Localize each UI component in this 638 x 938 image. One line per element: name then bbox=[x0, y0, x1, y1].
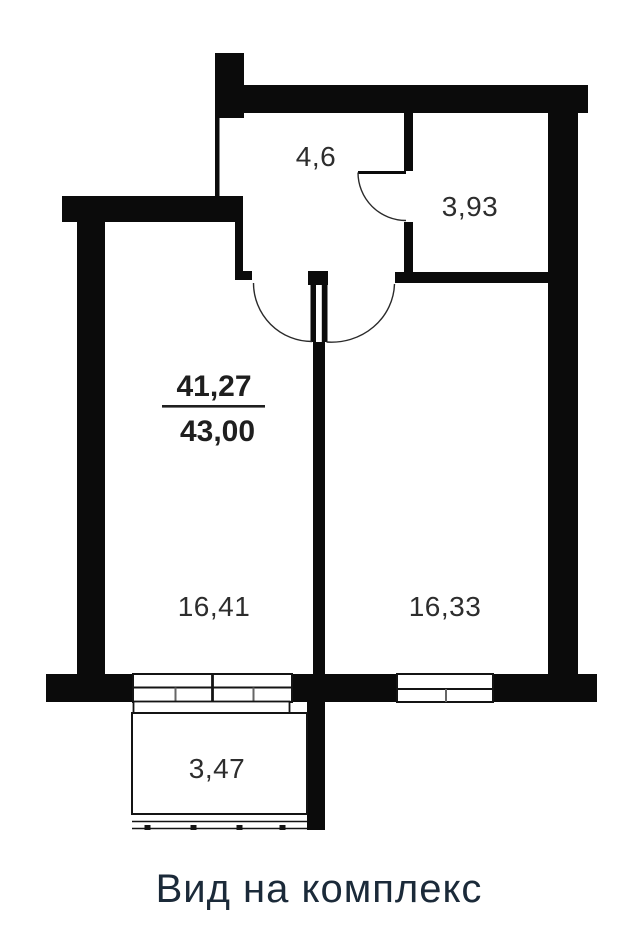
interior-walls bbox=[235, 113, 548, 676]
wall-top bbox=[215, 85, 588, 113]
wall-hallway-door-stub-left bbox=[235, 271, 252, 280]
wall-bottom-left bbox=[46, 674, 133, 702]
balcony-railing-dash bbox=[280, 825, 286, 830]
wall-bottom-right bbox=[493, 674, 597, 702]
area-summary-divider-line bbox=[162, 405, 265, 408]
wall-balcony-right-tongue bbox=[307, 702, 325, 830]
living-room-door-leaf bbox=[322, 285, 328, 342]
wall-bathroom-divider-upper bbox=[404, 113, 413, 171]
wall-hallway-left-line bbox=[215, 113, 220, 198]
wall-bottom-middle bbox=[292, 674, 397, 702]
living-area-total: 41,27 bbox=[176, 370, 251, 403]
living-room-window bbox=[397, 674, 493, 702]
bedroom-area-label: 16,41 bbox=[178, 591, 251, 622]
wall-left-protrusion bbox=[62, 196, 243, 222]
bedroom-door-arc bbox=[254, 283, 313, 342]
bathroom-area-label: 3,93 bbox=[442, 191, 499, 222]
living-room-door-arc bbox=[327, 284, 395, 342]
balcony-railing-dash bbox=[191, 825, 197, 830]
balcony-railing-dash bbox=[145, 825, 151, 830]
bathroom-door-arc bbox=[358, 173, 406, 221]
balcony-railing-dash bbox=[237, 825, 243, 830]
bedroom-window bbox=[133, 674, 292, 714]
balcony-area-label: 3,47 bbox=[189, 753, 246, 784]
balcony-door-sill bbox=[134, 702, 290, 714]
living-room-area-label: 16,33 bbox=[409, 591, 482, 622]
wall-bathroom-divider-lower bbox=[404, 222, 413, 272]
wall-right bbox=[548, 113, 578, 702]
floorplan-canvas: 4,6 3,93 16,41 16,33 3,47 41,27 43,00 Ви… bbox=[0, 0, 638, 938]
wall-hallway-left-lower bbox=[235, 222, 243, 275]
wall-center-cap bbox=[308, 271, 328, 285]
overall-area-total: 43,00 bbox=[180, 415, 255, 448]
bathroom-door-leaf bbox=[358, 171, 406, 174]
view-caption: Вид на комплекс bbox=[156, 867, 483, 911]
doors bbox=[254, 171, 407, 342]
wall-bathroom-bottom bbox=[395, 272, 548, 283]
hallway-area-label: 4,6 bbox=[296, 141, 336, 172]
wall-center-divider bbox=[313, 342, 325, 676]
bedroom-door-leaf bbox=[311, 285, 317, 342]
wall-left bbox=[77, 196, 105, 702]
area-summary: 41,27 43,00 bbox=[162, 370, 265, 448]
